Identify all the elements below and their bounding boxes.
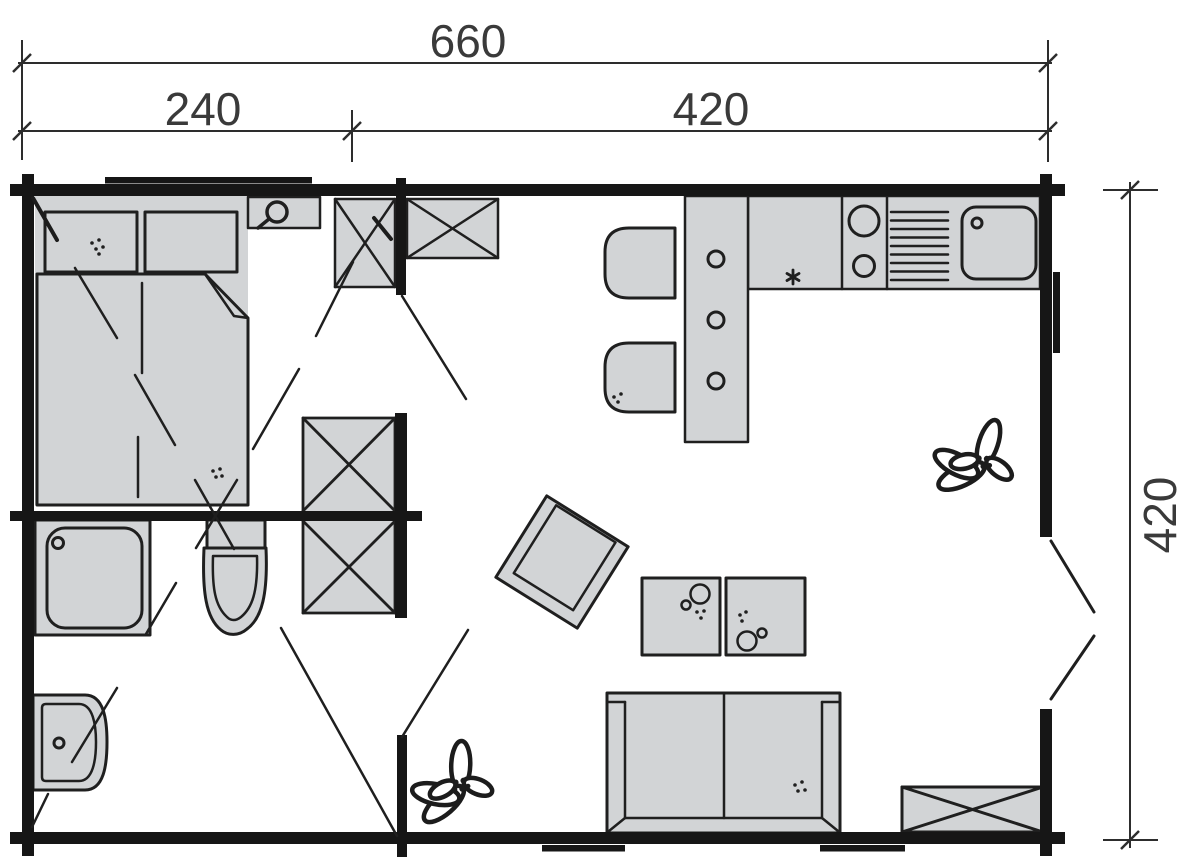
- window-right: [1053, 272, 1060, 353]
- dimension-overall-width: 660: [430, 15, 507, 67]
- toilet: [204, 520, 267, 634]
- dimension-section-left: 240: [165, 83, 242, 135]
- coffee-table: [642, 578, 720, 655]
- armchair: [496, 496, 628, 628]
- washbasin: [33, 695, 107, 790]
- wall-partition-middle: [395, 413, 407, 618]
- coffee-table: [726, 578, 805, 655]
- wall-right-upper: [1040, 174, 1052, 537]
- plant-icon: [405, 737, 499, 830]
- storage-unit: [902, 787, 1043, 832]
- floor-plan-drawing: 660 240 420 420: [0, 0, 1181, 867]
- floor-plan: 660 240 420 420: [0, 0, 1181, 867]
- wardrobe-top-left: [335, 199, 395, 287]
- dimension-overall-depth: 420: [1134, 477, 1181, 554]
- wardrobe-top-right: [407, 199, 498, 258]
- door-right-leaf: [1051, 636, 1094, 699]
- plant-icon: [925, 409, 1024, 507]
- pillow: [145, 212, 237, 272]
- wall-bottom: [10, 832, 1065, 844]
- nightstand: [248, 197, 320, 228]
- sofa: [607, 693, 840, 833]
- chair: [605, 343, 675, 412]
- window-bottom-left: [542, 845, 625, 852]
- dimension-section-right: 420: [673, 83, 750, 135]
- kitchen-sink-icon: [962, 207, 1036, 279]
- window-bottom-right: [820, 845, 905, 852]
- wall-door-stub: [397, 735, 407, 857]
- wall-right-lower: [1040, 709, 1052, 856]
- dining-table: [685, 196, 748, 442]
- wall-partition-upper: [396, 178, 406, 295]
- kitchen-counter: [748, 196, 1040, 289]
- shower: [35, 520, 150, 635]
- wall-top: [10, 184, 1065, 196]
- chair: [605, 228, 675, 298]
- door-right-leaf: [1051, 541, 1094, 612]
- window-top: [105, 177, 312, 184]
- double-bed: [35, 196, 248, 505]
